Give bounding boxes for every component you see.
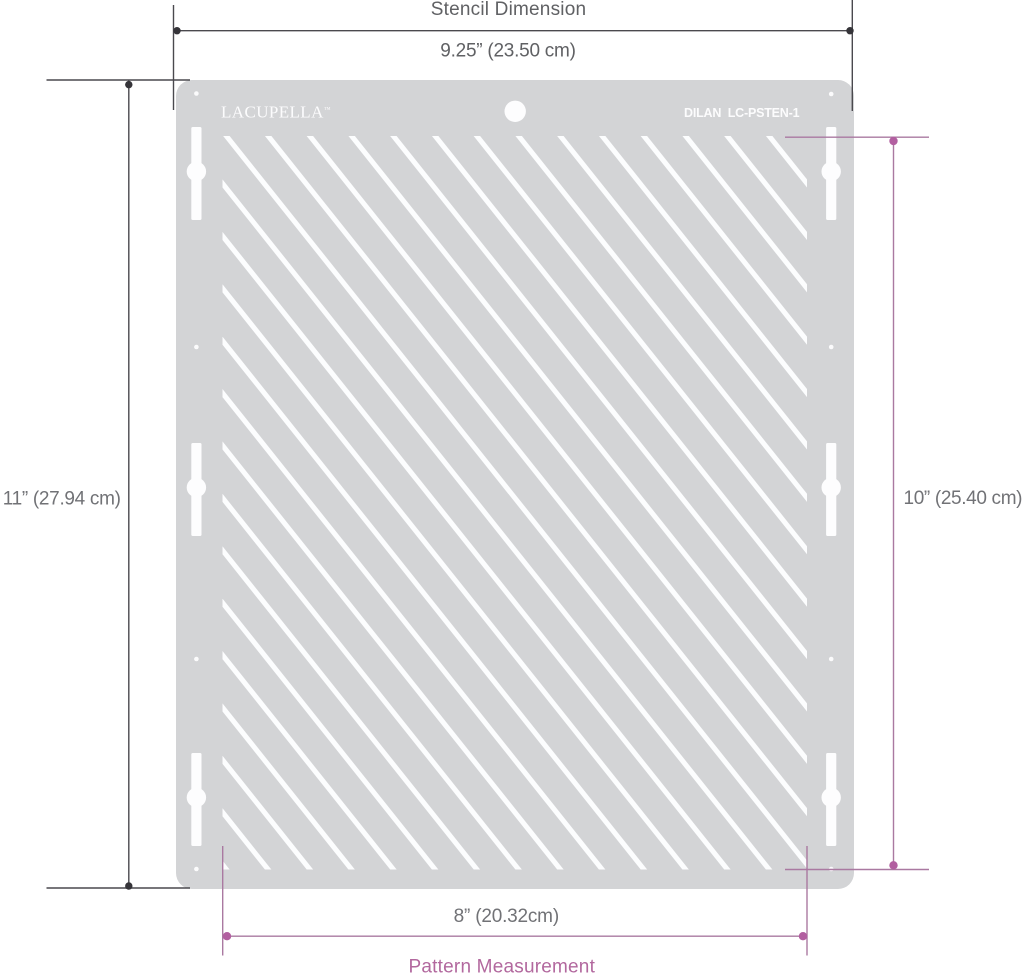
- svg-text:Pattern Measurement: Pattern Measurement: [409, 956, 596, 973]
- svg-text:DILAN LC-PSTEN-1: DILAN LC-PSTEN-1: [684, 106, 800, 120]
- svg-text:9.25” (23.50 cm): 9.25” (23.50 cm): [440, 41, 575, 62]
- svg-text:LACUPELLA™: LACUPELLA™: [221, 103, 331, 122]
- svg-text:Stencil Dimension: Stencil Dimension: [431, 0, 586, 20]
- svg-text:11” (27.94 cm): 11” (27.94 cm): [3, 488, 121, 509]
- svg-text:10” (25.40 cm): 10” (25.40 cm): [904, 488, 1023, 509]
- svg-text:8” (20.32cm): 8” (20.32cm): [454, 906, 559, 927]
